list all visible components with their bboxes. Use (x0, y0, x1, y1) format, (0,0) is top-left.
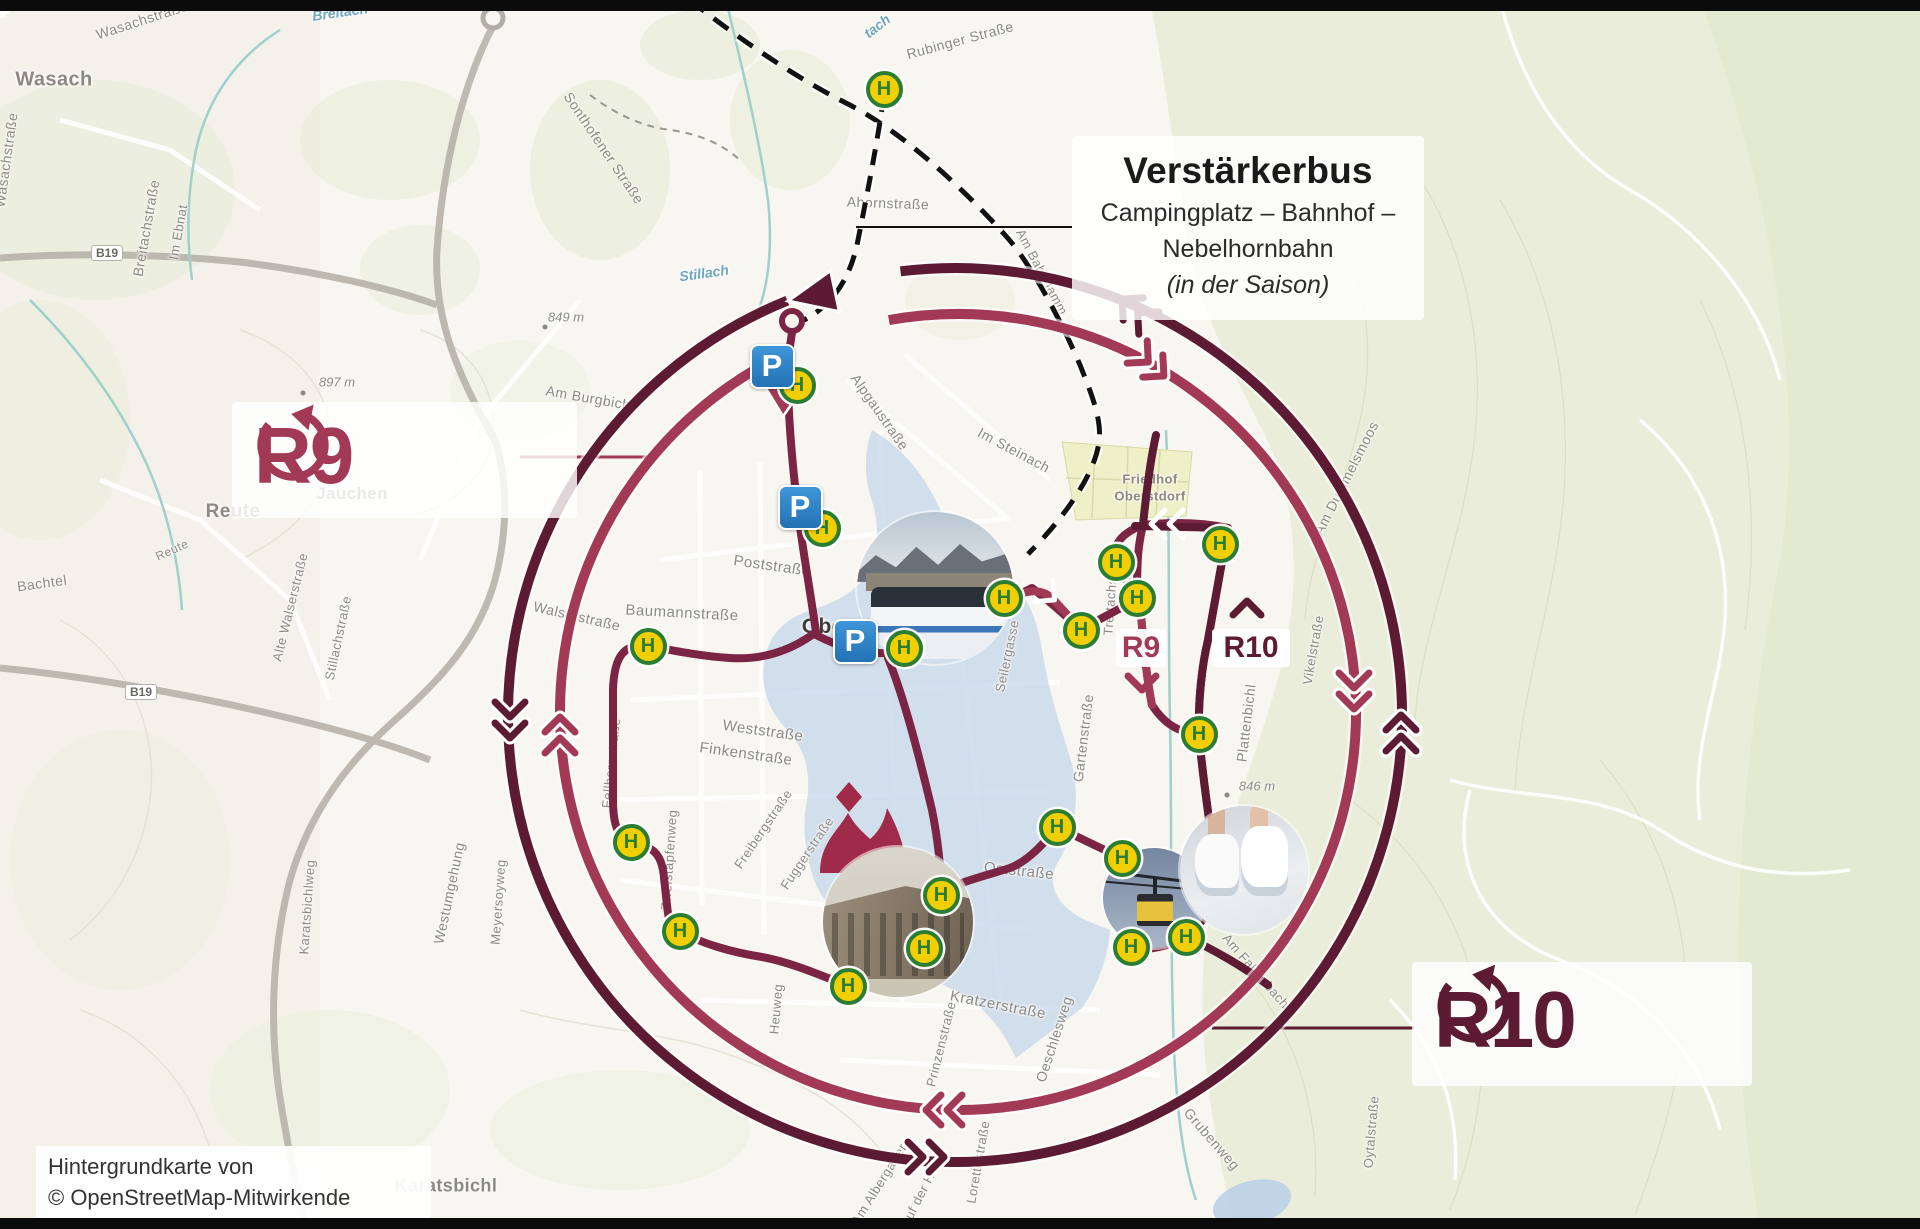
route-r9-label: R9 (254, 416, 352, 496)
route-r9-callout: R9 (232, 402, 577, 518)
attribution-line1: Hintergrundkarte von (48, 1152, 431, 1183)
verstaerkerbus-line2: Nebelhornbahn (1072, 235, 1424, 264)
bottom-black-bar (0, 1218, 1920, 1229)
verstaerkerbus-line3: (in der Saison) (1072, 271, 1424, 300)
verstaerkerbus-title: Verstärkerbus (1072, 150, 1424, 192)
r10-inline-chip: R10 (1212, 629, 1290, 667)
top-black-bar (0, 0, 1920, 11)
verstaerkerbus-line1: Campingplatz – Bahnhof – (1072, 199, 1424, 228)
attribution-line2: © OpenStreetMap-Mitwirkende (48, 1183, 431, 1214)
r9-inline-label: R9 (1122, 631, 1160, 665)
route-r10-callout: R10 (1412, 962, 1752, 1086)
route-r10-label: R10 (1434, 980, 1575, 1060)
verstaerkerbus-callout: Verstärkerbus Campingplatz – Bahnhof – N… (1072, 136, 1424, 320)
osm-attribution: Hintergrundkarte von © OpenStreetMap-Mit… (36, 1146, 431, 1218)
r10-inline-label: R10 (1223, 631, 1278, 665)
r9-inline-chip: R9 (1116, 629, 1166, 667)
map-canvas: WasachstraßeWasachstraßeBreitachstraßeIm… (0, 0, 1920, 1229)
